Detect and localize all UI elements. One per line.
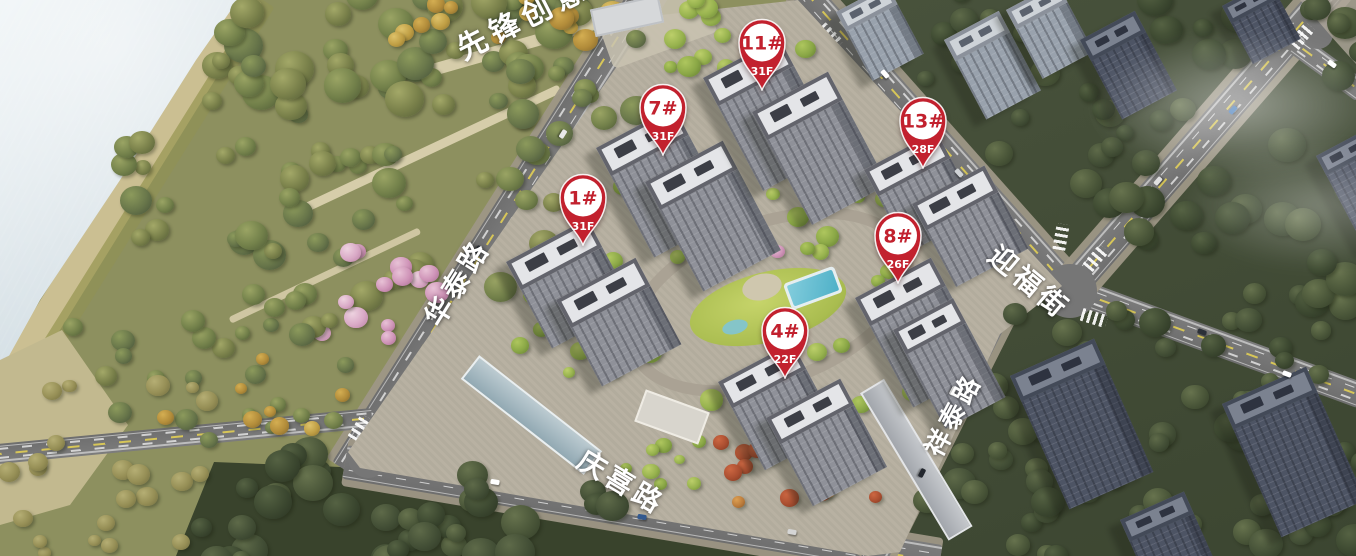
marker-pin-shape: 13#28F — [895, 93, 951, 169]
building-marker-4[interactable]: 4#22F — [757, 303, 813, 383]
marker-floor-count: 22F — [774, 353, 797, 366]
marker-pin-shape: 1#31F — [555, 170, 611, 246]
building-marker-7[interactable]: 7#31F — [635, 80, 691, 160]
marker-floor-count: 26F — [887, 258, 910, 271]
building-marker-13[interactable]: 13#28F — [895, 93, 951, 173]
marker-pin-shape: 4#22F — [757, 303, 813, 379]
aerial-masterplan-map: 先锋创意华泰路迎福街祥泰路庆喜路 1#31F4#22F7#31F8#26F11#… — [0, 0, 1356, 556]
marker-floor-count: 31F — [652, 130, 675, 143]
marker-building-number: 13# — [902, 111, 944, 133]
building-marker-1[interactable]: 1#31F — [555, 170, 611, 250]
marker-floor-count: 31F — [751, 65, 774, 78]
marker-pin-shape: 8#26F — [870, 208, 926, 284]
marker-pin-shape: 7#31F — [635, 80, 691, 156]
marker-building-number: 11# — [741, 33, 783, 55]
marker-pin-shape: 11#31F — [734, 15, 790, 91]
marker-building-number: 4# — [770, 321, 799, 343]
marker-floor-count: 28F — [912, 143, 935, 156]
building-marker-11[interactable]: 11#31F — [734, 15, 790, 95]
marker-building-number: 7# — [648, 98, 677, 120]
building-marker-8[interactable]: 8#26F — [870, 208, 926, 288]
marker-floor-count: 31F — [572, 220, 595, 233]
marker-building-number: 1# — [568, 188, 597, 210]
building-markers-layer: 1#31F4#22F7#31F8#26F11#31F13#28F — [0, 0, 1356, 556]
marker-building-number: 8# — [883, 226, 912, 248]
